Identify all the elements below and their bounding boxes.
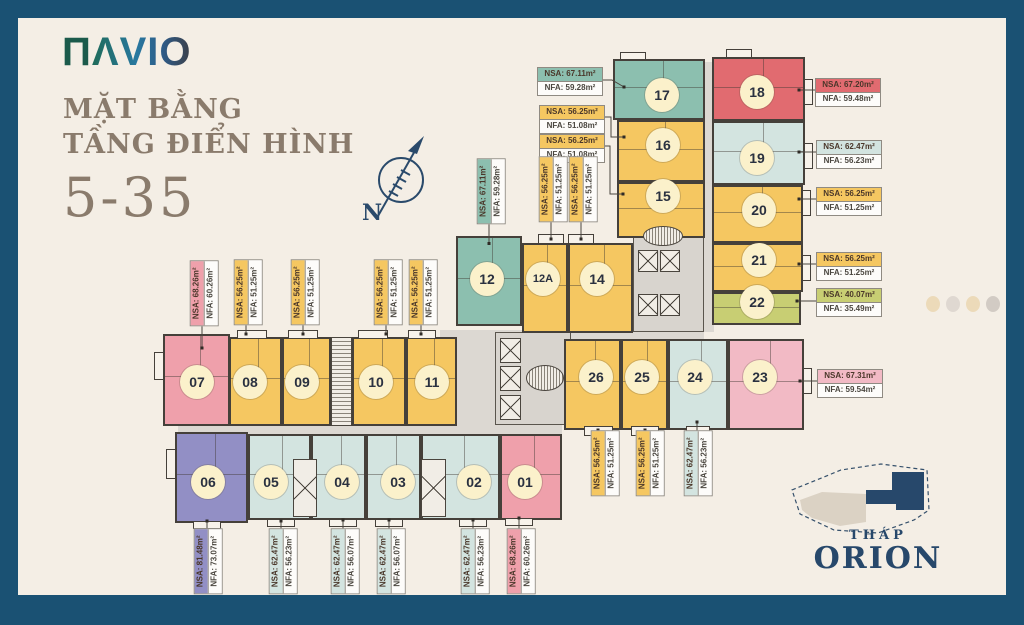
unit-16-badge: 16	[646, 128, 680, 162]
unit-12-area-label: NSA: 67.11m² NFA: 59.28m²	[477, 158, 506, 224]
unit-20-area-label: NSA: 56.25m² NFA: 51.25m²	[816, 187, 882, 216]
nfa-value: NFA: 35.49m²	[817, 302, 881, 316]
unit-12-badge: 12	[470, 262, 504, 296]
nsa-value: NSA: 40.07m²	[817, 289, 881, 302]
nsa-value: NSA: 68.26m²	[508, 529, 521, 593]
unit-12A-area-label: NSA: 56.25m² NFA: 51.25m²	[539, 156, 568, 222]
nfa-value: NFA: 51.08m²	[540, 119, 604, 133]
unit-12A-badge: 12A	[526, 262, 560, 296]
nsa-value: NSA: 56.25m²	[540, 106, 604, 119]
unit-26-badge: 26	[579, 360, 613, 394]
nsa-value: NSA: 56.25m²	[410, 260, 423, 324]
unit-08-area-label: NSA: 56.25m² NFA: 51.25m²	[234, 259, 263, 325]
unit-06-badge: 06	[191, 465, 225, 499]
nfa-value: NFA: 51.25m²	[248, 260, 262, 324]
unit-17-badge: 17	[645, 78, 679, 112]
nsa-value: NSA: 62.47m²	[462, 529, 475, 593]
nfa-value: NFA: 60.26m²	[204, 261, 218, 325]
nsa-value: NSA: 56.25m²	[592, 431, 605, 495]
unit-19-area-label: NSA: 62.47m² NFA: 56.23m²	[816, 140, 882, 169]
nsa-value: NSA: 56.25m²	[235, 260, 248, 324]
nfa-value: NFA: 51.25m²	[583, 157, 597, 221]
nsa-value: NSA: 62.47m²	[332, 529, 345, 593]
unit-23-badge: 23	[743, 360, 777, 394]
nsa-value: NSA: 67.11m²	[478, 159, 491, 223]
nfa-value: NFA: 56.07m²	[345, 529, 359, 593]
nfa-value: NFA: 51.25m²	[605, 431, 619, 495]
nfa-value: NFA: 51.25m²	[817, 201, 881, 215]
unit-04-area-label: NSA: 62.47m² NFA: 56.07m²	[331, 528, 360, 594]
nsa-value: NSA: 67.31m²	[818, 370, 882, 383]
nsa-value: NSA: 56.25m²	[375, 260, 388, 324]
unit-08-badge: 08	[233, 365, 267, 399]
nfa-value: NFA: 60.26m²	[521, 529, 535, 593]
unit-04-badge: 04	[325, 465, 359, 499]
unit-23-area-label: NSA: 67.31m² NFA: 59.54m²	[817, 369, 883, 398]
unit-14-badge: 14	[580, 262, 614, 296]
nfa-value: NFA: 56.07m²	[391, 529, 405, 593]
unit-11-area-label: NSA: 56.25m² NFA: 51.25m²	[409, 259, 438, 325]
unit-09-area-label: NSA: 56.25m² NFA: 51.25m²	[291, 259, 320, 325]
nfa-value: NFA: 73.07m²	[208, 529, 222, 593]
nfa-value: NFA: 56.23m²	[475, 529, 489, 593]
nsa-value: NSA: 56.25m²	[817, 188, 881, 201]
unit-24-area-label: NSA: 62.47m² NFA: 56.23m²	[684, 430, 713, 496]
nfa-value: NFA: 59.28m²	[491, 159, 505, 223]
unit-09-badge: 09	[285, 365, 319, 399]
unit-07-area-label: NSA: 68.26m² NFA: 60.26m²	[190, 260, 219, 326]
nsa-value: NSA: 62.47m²	[270, 529, 283, 593]
nsa-value: NSA: 56.25m²	[540, 157, 553, 221]
nfa-value: NFA: 59.28m²	[538, 81, 602, 95]
unit-10-area-label: NSA: 56.25m² NFA: 51.25m²	[374, 259, 403, 325]
nfa-value: NFA: 51.25m²	[423, 260, 437, 324]
nfa-value: NFA: 51.25m²	[305, 260, 319, 324]
nfa-value: NFA: 59.54m²	[818, 383, 882, 397]
unit-20-badge: 20	[742, 193, 776, 227]
unit-03-badge: 03	[381, 465, 415, 499]
unit-10-badge: 10	[359, 365, 393, 399]
nsa-value: NSA: 67.11m²	[538, 68, 602, 81]
nsa-value: NSA: 62.47m²	[817, 141, 881, 154]
unit-01-area-label: NSA: 68.26m² NFA: 60.26m²	[507, 528, 536, 594]
unit-05-badge: 05	[254, 465, 288, 499]
unit-24-badge: 24	[678, 360, 712, 394]
floor-plan-poster: ΠΛVIO MẶT BẰNG TẦNG ĐIỂN HÌNH 5-35 N	[0, 0, 1024, 625]
unit-21-area-label: NSA: 56.25m² NFA: 51.25m²	[816, 252, 882, 281]
unit-26-area-label: NSA: 56.25m² NFA: 51.25m²	[591, 430, 620, 496]
unit-11-badge: 11	[415, 365, 449, 399]
unit-22-badge: 22	[740, 285, 774, 319]
unit-25-area-label: NSA: 56.25m² NFA: 51.25m²	[636, 430, 665, 496]
nsa-value: NSA: 81.48m²	[195, 529, 208, 593]
nsa-value: NSA: 56.25m²	[292, 260, 305, 324]
unit-06-area-label: NSA: 81.48m² NFA: 73.07m²	[194, 528, 223, 594]
nsa-value: NSA: 56.25m²	[570, 157, 583, 221]
unit-18-badge: 18	[740, 75, 774, 109]
unit-02-badge: 02	[457, 465, 491, 499]
unit-15-badge: 15	[646, 179, 680, 213]
nsa-value: NSA: 56.25m²	[637, 431, 650, 495]
unit-01-badge: 01	[508, 465, 542, 499]
nsa-value: NSA: 56.25m²	[540, 135, 604, 148]
nfa-value: NFA: 51.25m²	[388, 260, 402, 324]
unit-22-area-label: NSA: 40.07m² NFA: 35.49m²	[816, 288, 882, 317]
unit-17-area-label: NSA: 67.11m² NFA: 59.28m²	[537, 67, 603, 96]
nfa-value: NFA: 51.25m²	[650, 431, 664, 495]
nsa-value: NSA: 62.47m²	[378, 529, 391, 593]
unit-14-area-label: NSA: 56.25m² NFA: 51.25m²	[569, 156, 598, 222]
nfa-value: NFA: 56.23m²	[283, 529, 297, 593]
nfa-value: NFA: 56.23m²	[817, 154, 881, 168]
nfa-value: NFA: 51.25m²	[817, 266, 881, 280]
unit-03-area-label: NSA: 62.47m² NFA: 56.07m²	[377, 528, 406, 594]
unit-02-area-label: NSA: 62.47m² NFA: 56.23m²	[461, 528, 490, 594]
unit-16-area-label: NSA: 56.25m² NFA: 51.08m²	[539, 105, 605, 134]
nfa-value: NFA: 51.25m²	[553, 157, 567, 221]
unit-07-badge: 07	[180, 365, 214, 399]
unit-18-area-label: NSA: 67.20m² NFA: 59.48m²	[815, 78, 881, 107]
unit-05-area-label: NSA: 62.47m² NFA: 56.23m²	[269, 528, 298, 594]
unit-19-badge: 19	[740, 141, 774, 175]
nfa-value: NFA: 56.23m²	[698, 431, 712, 495]
nsa-value: NSA: 62.47m²	[685, 431, 698, 495]
unit-21-badge: 21	[742, 243, 776, 277]
nsa-value: NSA: 68.26m²	[191, 261, 204, 325]
nsa-value: NSA: 56.25m²	[817, 253, 881, 266]
unit-25-badge: 25	[625, 360, 659, 394]
nsa-value: NSA: 67.20m²	[816, 79, 880, 92]
nfa-value: NFA: 59.48m²	[816, 92, 880, 106]
